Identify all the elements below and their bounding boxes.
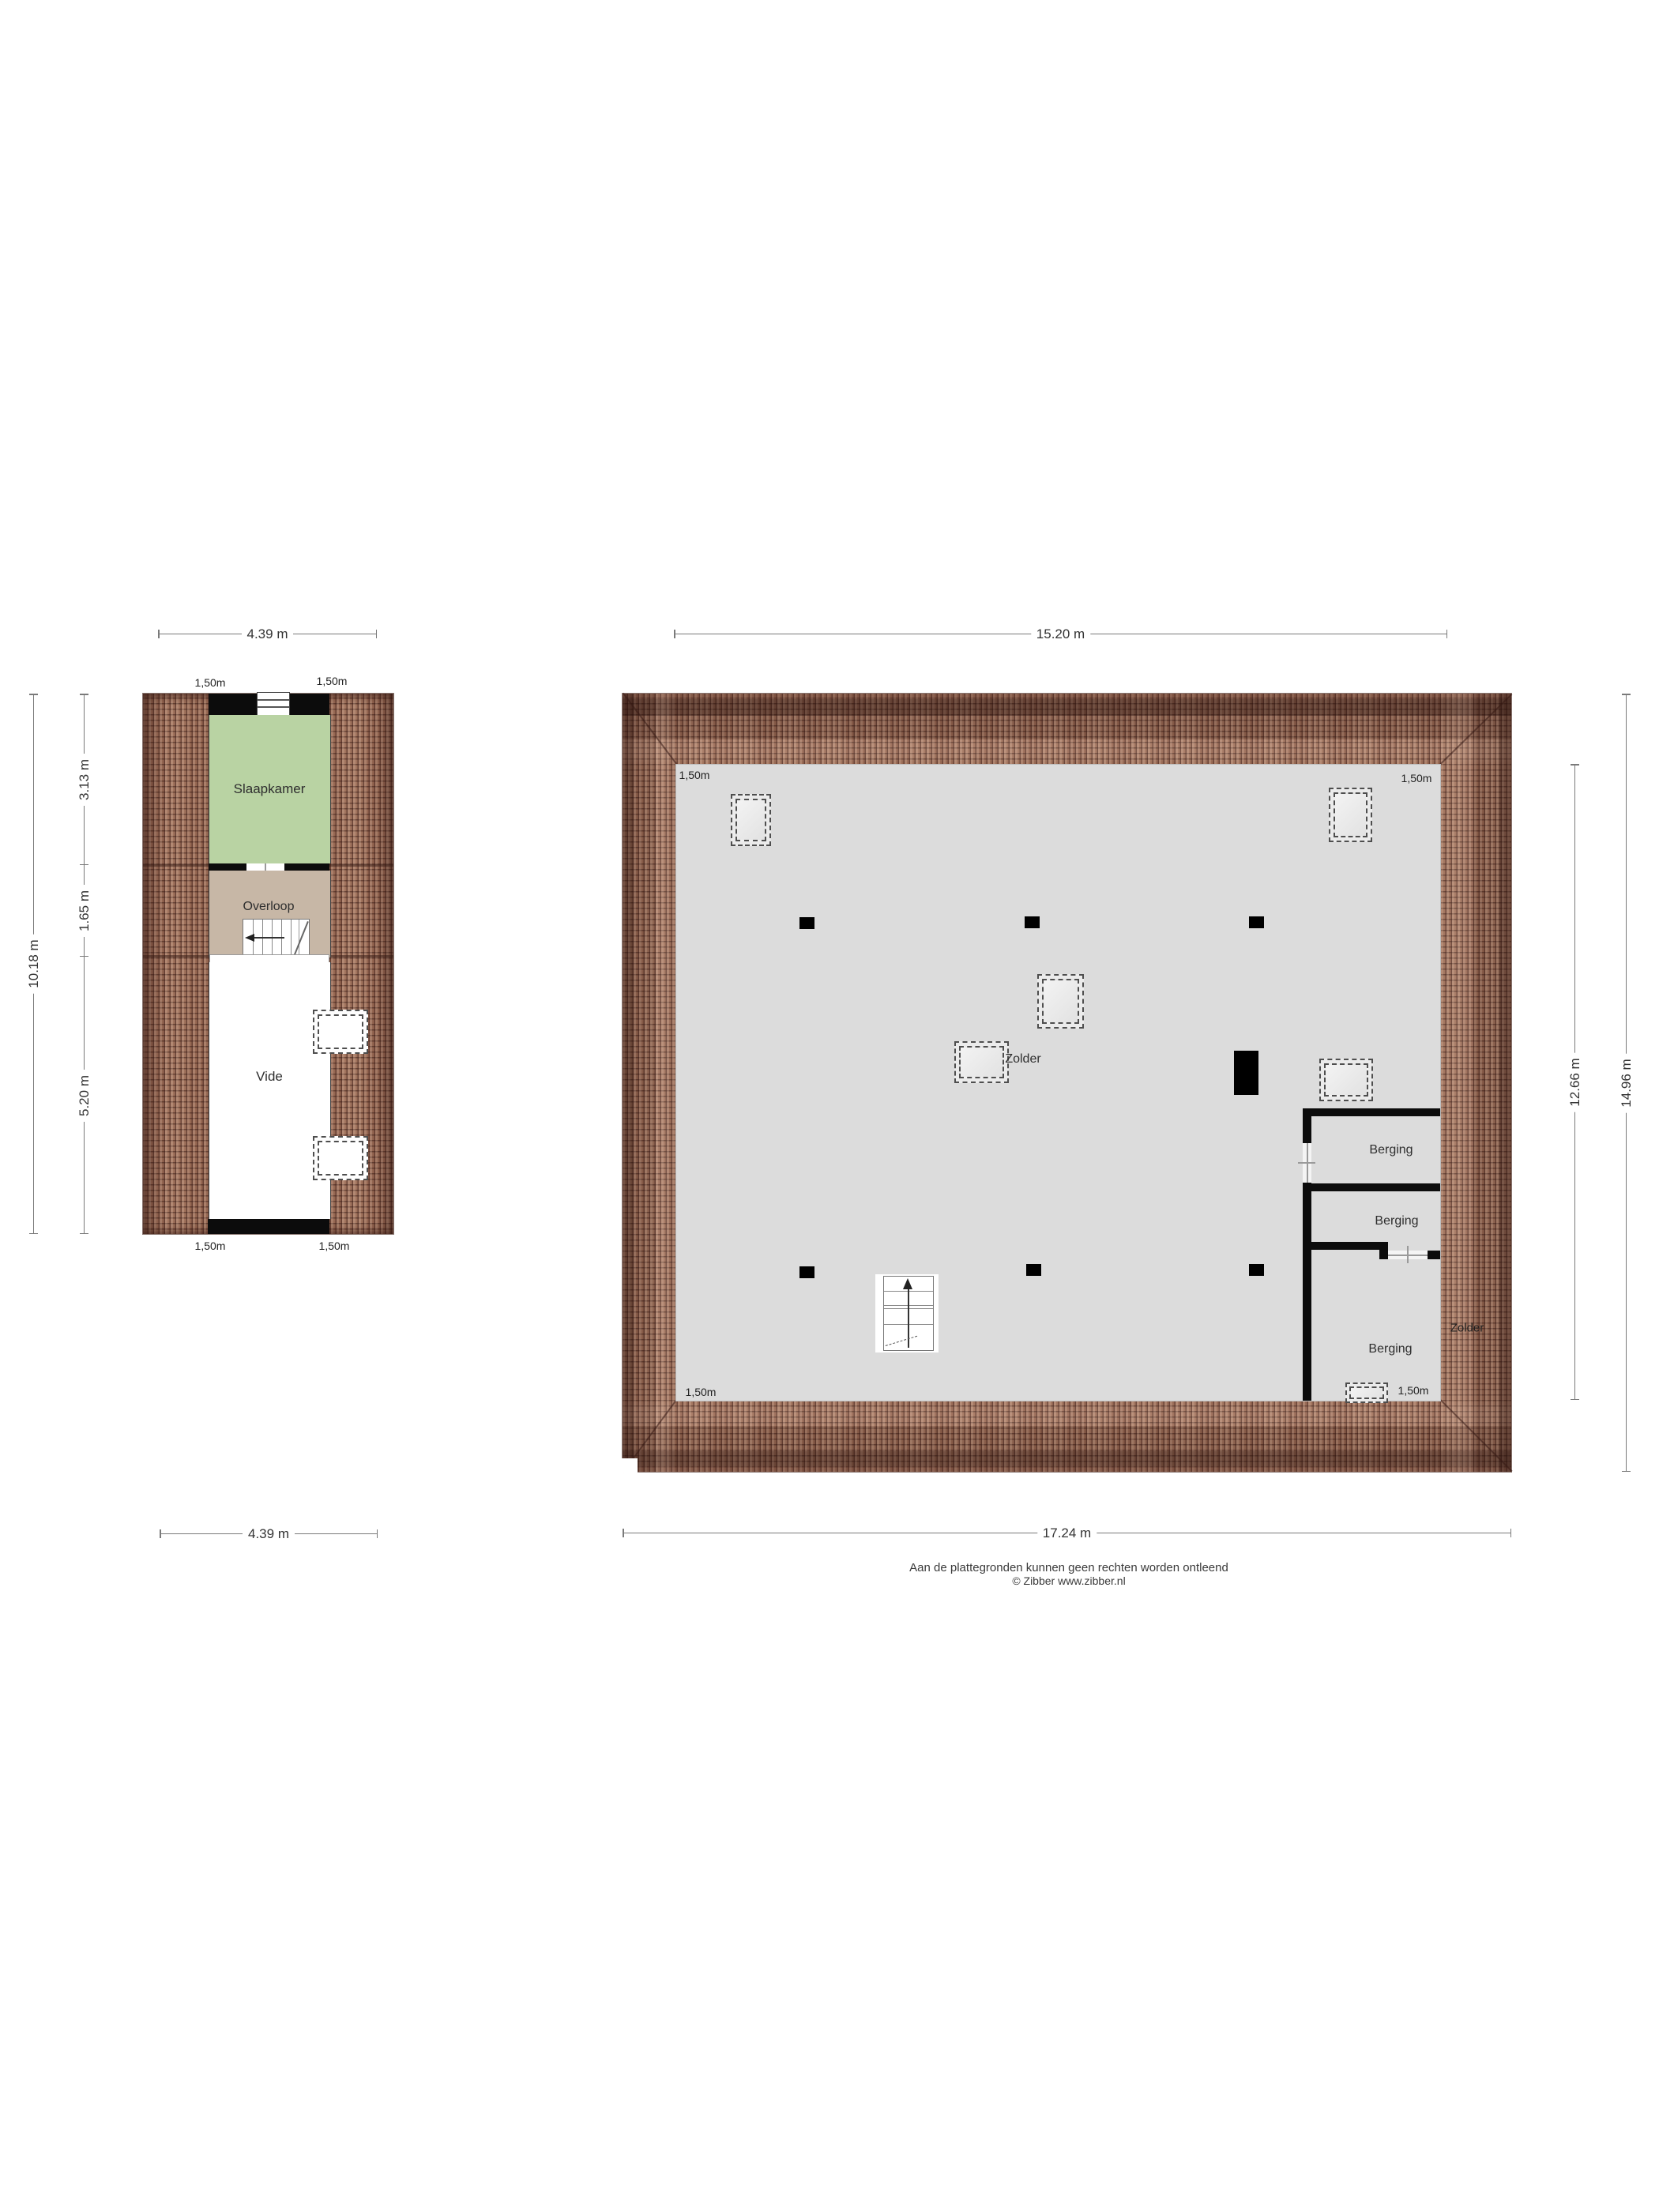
headroom-label: 1,50m: [1401, 772, 1432, 784]
room-label-berging-1: Berging: [1369, 1143, 1413, 1157]
dim-left-bottom: 4.39 m: [160, 1533, 378, 1534]
skylight-icon: [1319, 1059, 1373, 1101]
room-label-overloop: Overloop: [243, 900, 295, 914]
chimney: [1234, 1051, 1258, 1095]
berging-divider-wall: [1379, 1242, 1388, 1259]
skylight-icon: [954, 1041, 1009, 1083]
skylight-icon: [731, 794, 771, 846]
room-label-zolder: Zolder: [1005, 1052, 1040, 1066]
headroom-label: 1,50m: [1398, 1384, 1429, 1397]
door-opening: [1388, 1251, 1428, 1259]
berging-left-wall: [1303, 1108, 1311, 1143]
dim-right-top: 15.20 m: [674, 634, 1447, 634]
room-label-vide: Vide: [256, 1069, 283, 1085]
pillar: [799, 917, 814, 929]
pillar: [1249, 1264, 1264, 1276]
berging-divider-wall: [1303, 1242, 1388, 1250]
roof-corner-notch: [621, 1458, 638, 1473]
room-label-berging-2: Berging: [1375, 1214, 1418, 1228]
dim-right-outer: 14.96 m: [1626, 694, 1627, 1472]
roof-window-icon: [313, 1136, 368, 1180]
dim-right-bottom: 17.24 m: [623, 1533, 1511, 1533]
stairs-icon: [875, 1274, 939, 1352]
skylight-icon: [1329, 788, 1372, 842]
headroom-label: 1,50m: [319, 1240, 350, 1252]
dim-overloop-height: 1.65 m: [84, 865, 85, 957]
door-opening: [1303, 1143, 1311, 1183]
dim-left-outer: 10.18 m: [33, 694, 34, 1234]
pillar: [1249, 916, 1264, 928]
stairs-icon: [243, 919, 310, 957]
room-label-zolder-side: Zolder: [1450, 1322, 1484, 1335]
berging-wall-stub: [1428, 1251, 1440, 1259]
berging-top-wall: [1303, 1108, 1440, 1116]
pillar: [1026, 1264, 1041, 1276]
left-plan-bottom-wall: [208, 1219, 329, 1234]
copyright-text: © Zibber www.zibber.nl: [792, 1574, 1345, 1587]
room-label-slaapkamer: Slaapkamer: [234, 781, 306, 797]
pillar: [1025, 916, 1040, 928]
roof-window-icon: [313, 1010, 368, 1054]
disclaimer: Aan de plattegronden kunnen geen rechten…: [792, 1561, 1345, 1587]
headroom-label: 1,50m: [195, 1240, 226, 1252]
dim-vide-height: 5.20 m: [84, 957, 85, 1234]
berging-divider-wall: [1303, 1183, 1440, 1191]
disclaimer-text: Aan de plattegronden kunnen geen rechten…: [792, 1561, 1345, 1574]
room-label-berging-3: Berging: [1368, 1342, 1412, 1356]
headroom-label: 1,50m: [686, 1386, 717, 1398]
floorplan-page: { "colors": { "roof_tile": "#a0735d", "r…: [0, 0, 1659, 2212]
berging-left-wall: [1303, 1183, 1311, 1401]
pillar: [799, 1266, 814, 1278]
dim-slaapkamer-height: 3.13 m: [84, 694, 85, 865]
headroom-label: 1,50m: [679, 769, 710, 781]
skylight-icon: [1037, 974, 1084, 1029]
headroom-label: 1,50m: [195, 676, 226, 689]
dim-right-inner: 12.66 m: [1574, 764, 1575, 1400]
dim-left-top: 4.39 m: [158, 634, 377, 634]
skylight-icon: [1345, 1382, 1388, 1403]
headroom-label: 1,50m: [317, 675, 348, 687]
room-vide: [209, 962, 331, 1219]
window-icon: [257, 692, 290, 717]
